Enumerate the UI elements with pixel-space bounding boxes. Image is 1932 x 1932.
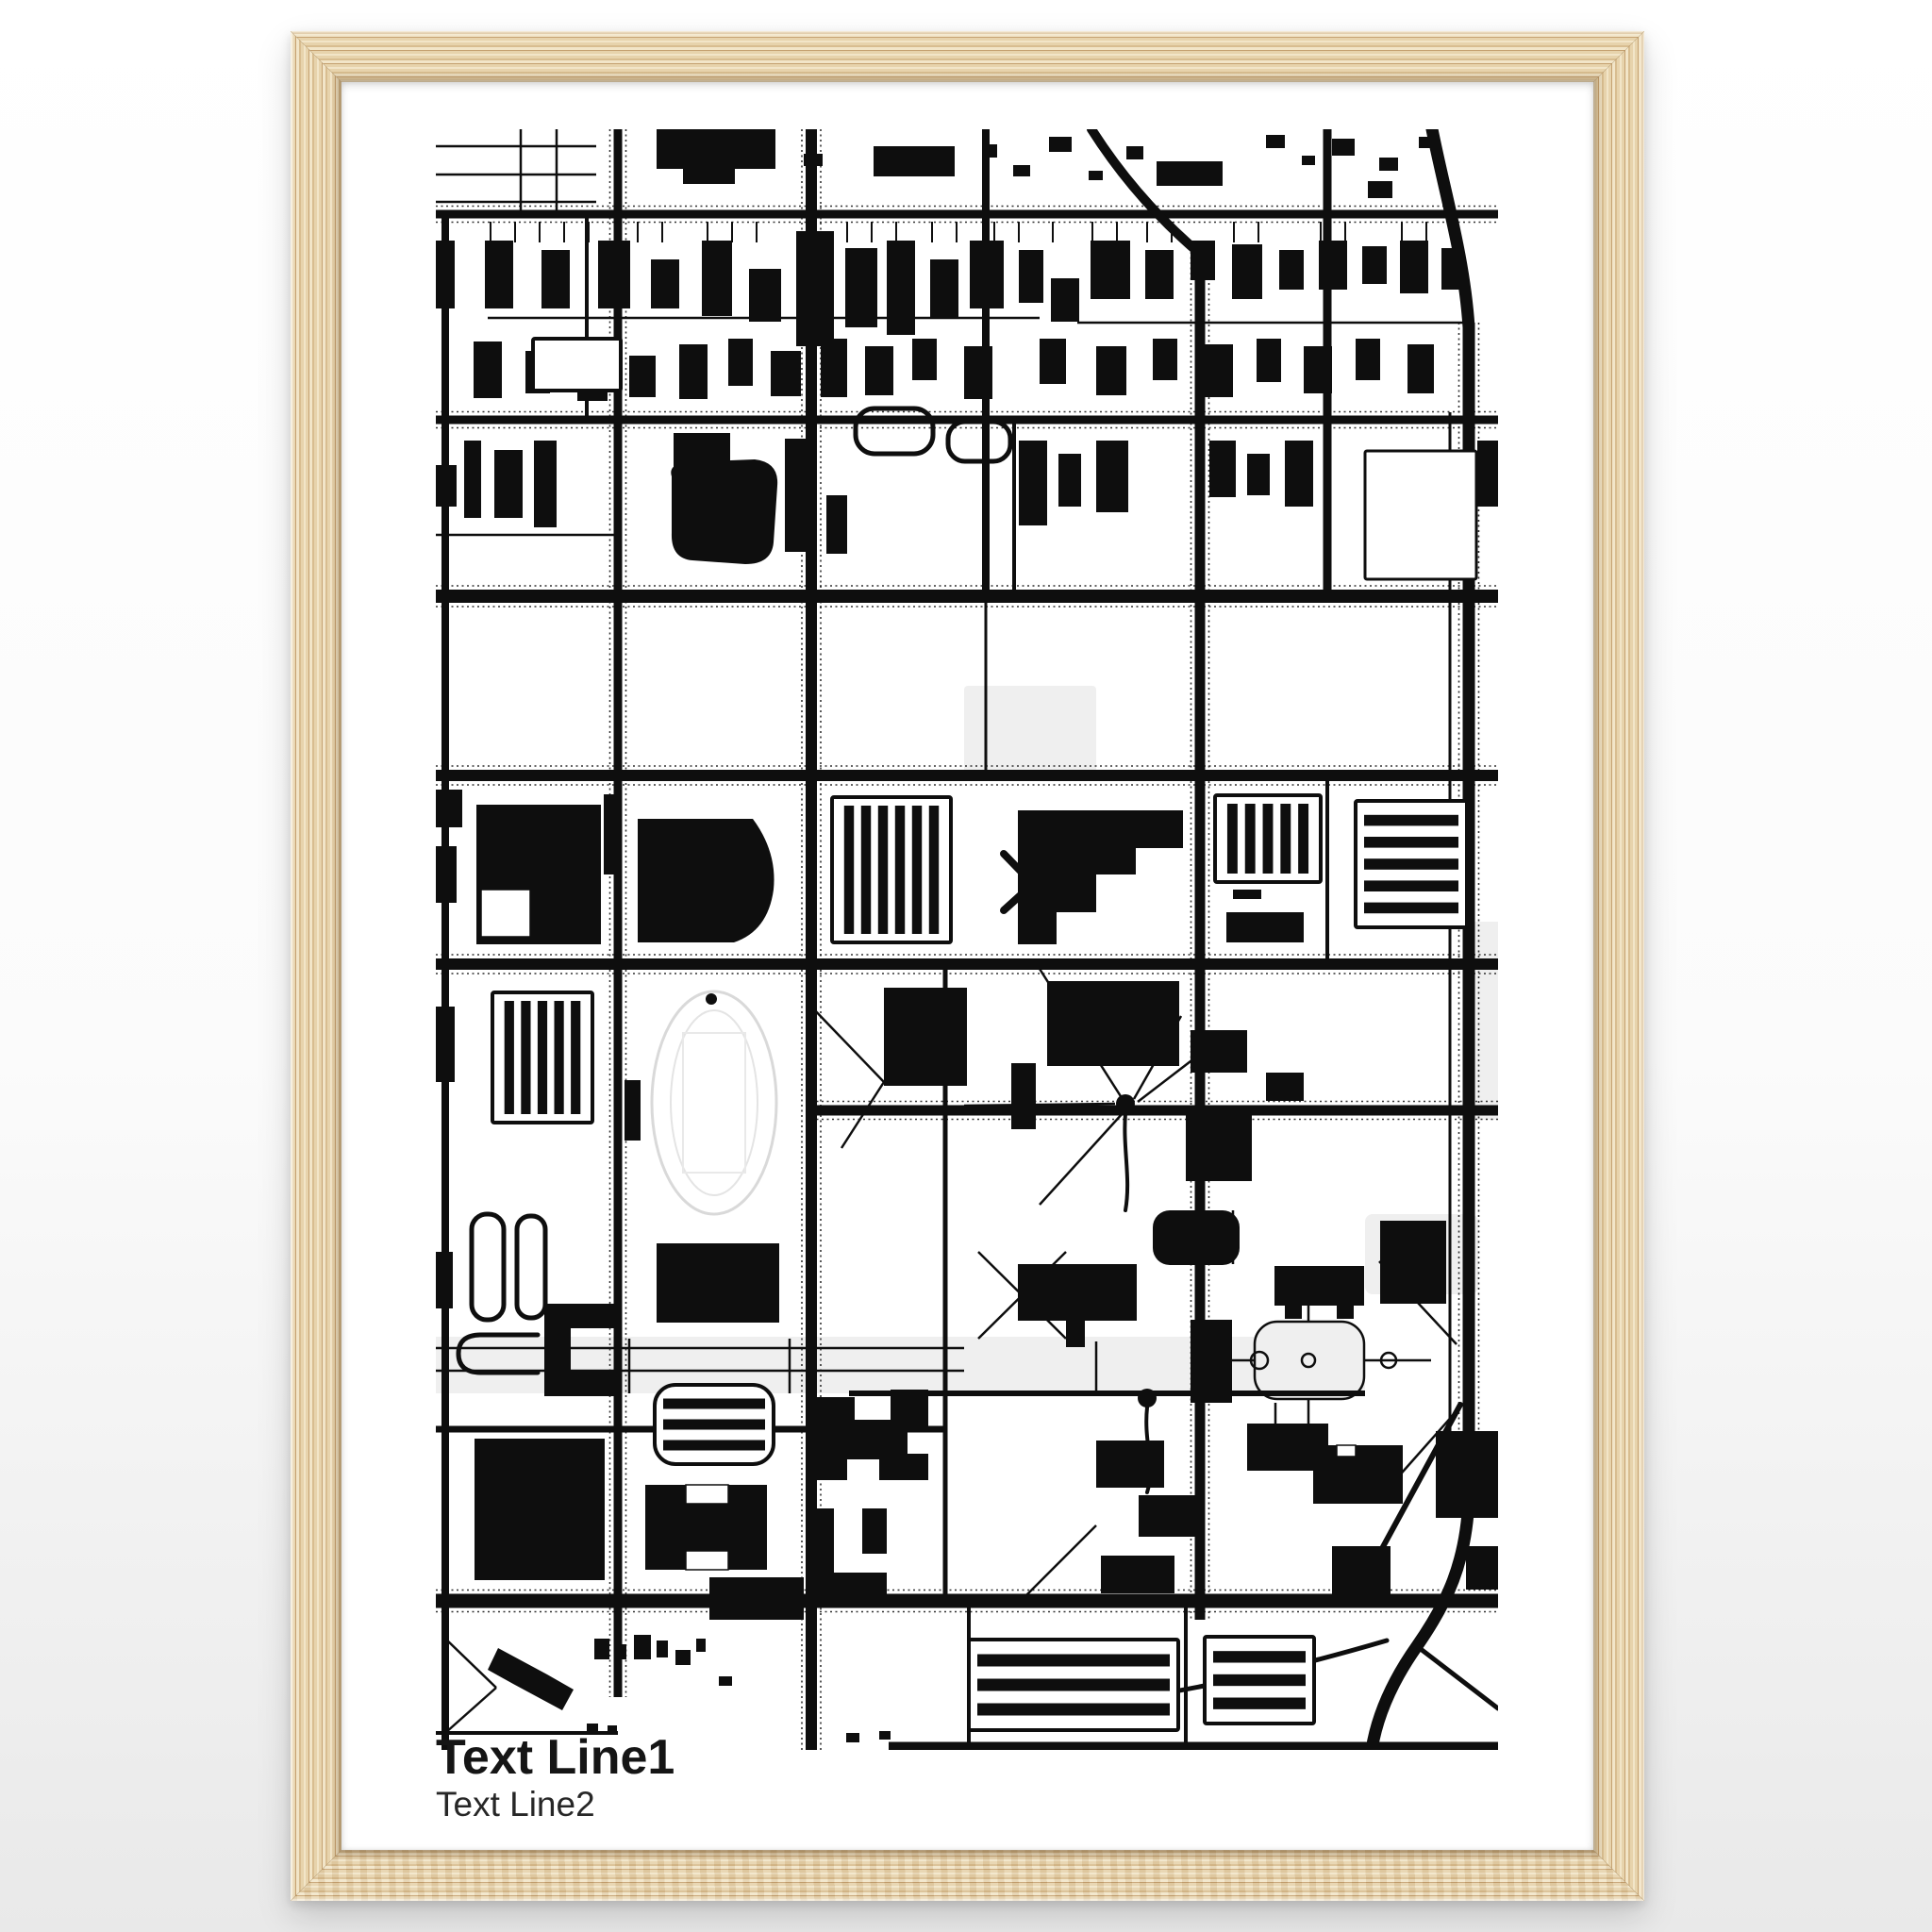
page-background: Text Line1 Text Line2 (0, 0, 1932, 1932)
wood-frame: Text Line1 Text Line2 (291, 31, 1644, 1901)
frame-rail-top (291, 31, 1644, 82)
frame-rail-bottom (291, 1850, 1644, 1901)
poster-subtitle: Text Line2 (436, 1786, 675, 1824)
map-print (436, 129, 1498, 1750)
frame-rail-right (1593, 31, 1644, 1901)
poster: Text Line1 Text Line2 (341, 82, 1593, 1850)
map-svg (436, 129, 1498, 1750)
frame-rail-left (291, 31, 341, 1901)
poster-caption: Text Line1 Text Line2 (436, 1733, 675, 1824)
poster-title: Text Line1 (436, 1733, 675, 1783)
